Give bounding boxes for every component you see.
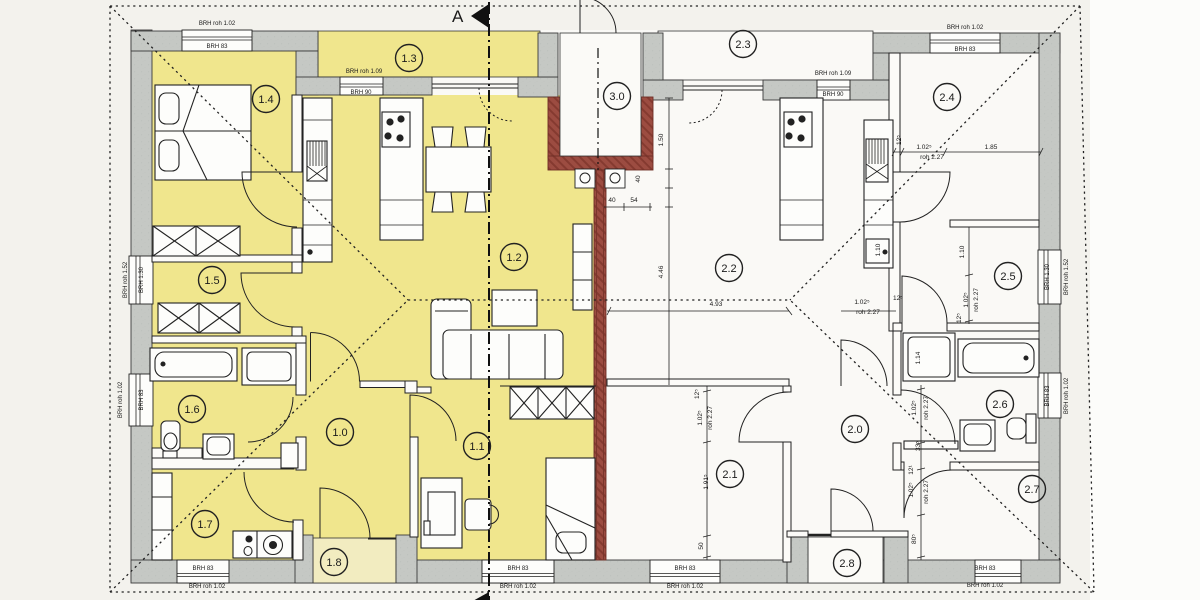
svg-text:80⁵: 80⁵ (911, 534, 918, 544)
svg-text:BRH 83: BRH 83 (139, 389, 145, 411)
svg-text:1.0: 1.0 (332, 427, 347, 439)
svg-text:roh 2.27: roh 2.27 (856, 309, 880, 316)
svg-text:1.50: 1.50 (658, 133, 665, 146)
svg-text:1.4: 1.4 (258, 94, 273, 106)
svg-text:roh 2.27: roh 2.27 (973, 288, 980, 312)
svg-text:BRH roh 1.02: BRH roh 1.02 (199, 21, 236, 27)
svg-text:BRH 83: BRH 83 (974, 566, 996, 572)
svg-text:A: A (452, 7, 464, 26)
svg-text:1.02⁵: 1.02⁵ (916, 144, 932, 151)
svg-text:BRH roh 1.09: BRH roh 1.09 (815, 71, 852, 77)
svg-text:1.8: 1.8 (326, 557, 341, 569)
svg-text:BRH roh 1.02: BRH roh 1.02 (947, 25, 984, 31)
svg-text:2.1: 2.1 (722, 469, 737, 481)
svg-text:12⁵: 12⁵ (893, 295, 903, 302)
svg-text:54: 54 (630, 197, 638, 204)
svg-text:BRH 83: BRH 83 (192, 566, 214, 572)
svg-text:2.5: 2.5 (1000, 271, 1015, 283)
svg-text:1.3: 1.3 (401, 53, 416, 65)
svg-text:BRH 83: BRH 83 (674, 566, 696, 572)
svg-text:1.6: 1.6 (184, 404, 199, 416)
svg-text:40: 40 (635, 175, 642, 183)
svg-text:BRH roh 1.02: BRH roh 1.02 (1064, 377, 1070, 414)
svg-text:1.10: 1.10 (875, 243, 882, 256)
svg-text:3.0: 3.0 (609, 91, 624, 103)
svg-text:2.8: 2.8 (839, 558, 854, 570)
svg-text:BRH 1.30: BRH 1.30 (139, 266, 145, 293)
svg-text:2.4: 2.4 (939, 92, 954, 104)
svg-text:4.46: 4.46 (658, 265, 665, 278)
svg-text:roh 2.27: roh 2.27 (707, 406, 714, 430)
svg-text:roh 2.27: roh 2.27 (923, 480, 930, 504)
svg-text:BRH 83: BRH 83 (1045, 385, 1051, 407)
svg-text:1.85: 1.85 (985, 144, 998, 151)
svg-text:BRH 90: BRH 90 (822, 92, 844, 98)
svg-text:12⁵: 12⁵ (896, 135, 903, 145)
svg-text:BRH 83: BRH 83 (206, 44, 228, 50)
svg-text:1.7: 1.7 (197, 519, 212, 531)
svg-text:12⁵: 12⁵ (956, 313, 963, 323)
svg-text:1.2: 1.2 (506, 252, 521, 264)
svg-text:BRH 83: BRH 83 (954, 47, 976, 53)
svg-text:BRH roh 1.02: BRH roh 1.02 (967, 583, 1004, 589)
svg-text:BRH roh 1.52: BRH roh 1.52 (123, 261, 129, 298)
svg-text:4.93: 4.93 (710, 301, 723, 308)
svg-text:BRH 90: BRH 90 (350, 90, 372, 96)
svg-text:1.14: 1.14 (915, 351, 922, 364)
svg-text:1.02⁵: 1.02⁵ (911, 400, 918, 416)
svg-text:BRH roh 1.02: BRH roh 1.02 (118, 381, 124, 418)
svg-text:40: 40 (608, 197, 616, 204)
svg-text:2.7: 2.7 (1024, 484, 1039, 496)
svg-text:1.1: 1.1 (469, 441, 484, 453)
svg-text:BRH 83: BRH 83 (507, 566, 529, 572)
svg-text:2.6: 2.6 (992, 399, 1007, 411)
svg-text:1.91⁵: 1.91⁵ (703, 474, 710, 490)
svg-text:1.5: 1.5 (204, 275, 219, 287)
svg-text:BRH roh 1.02: BRH roh 1.02 (500, 584, 537, 590)
svg-text:BRH roh 1.09: BRH roh 1.09 (346, 69, 383, 75)
svg-text:12¹: 12¹ (908, 464, 915, 474)
svg-text:1.02⁵: 1.02⁵ (908, 482, 915, 498)
svg-text:50: 50 (698, 542, 705, 550)
svg-text:2.3: 2.3 (735, 39, 750, 51)
svg-text:1.02⁵: 1.02⁵ (697, 410, 704, 426)
svg-text:roh 2.27: roh 2.27 (920, 154, 944, 161)
svg-text:roh 2.27: roh 2.27 (923, 396, 930, 420)
svg-text:2.0: 2.0 (847, 424, 862, 436)
svg-text:12⁵: 12⁵ (694, 389, 701, 399)
svg-text:BRH roh 1.52: BRH roh 1.52 (1064, 258, 1070, 295)
svg-text:33⁵: 33⁵ (915, 441, 922, 451)
svg-text:1.10: 1.10 (959, 245, 966, 258)
svg-text:BRH roh 1.02: BRH roh 1.02 (189, 584, 226, 590)
svg-text:BRH 1.30: BRH 1.30 (1045, 263, 1051, 290)
svg-text:1.02⁵: 1.02⁵ (963, 292, 970, 308)
svg-text:1.02⁵: 1.02⁵ (854, 299, 870, 306)
svg-text:2.2: 2.2 (721, 263, 736, 275)
svg-text:BRH roh 1.02: BRH roh 1.02 (667, 584, 704, 590)
